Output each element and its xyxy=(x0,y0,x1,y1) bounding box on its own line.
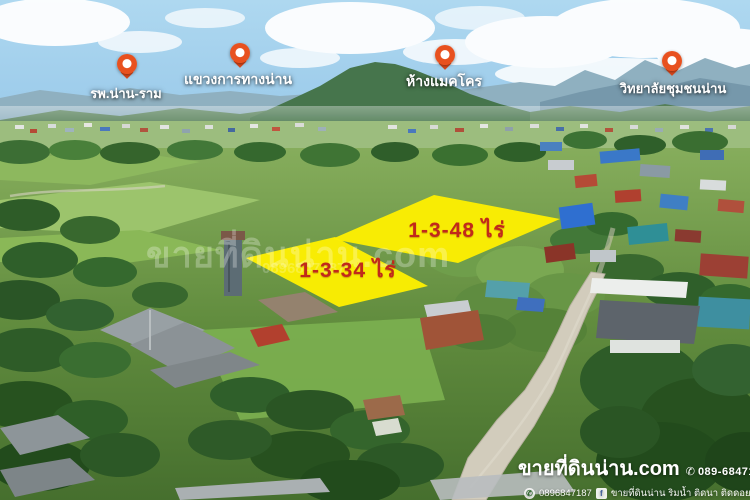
aerial-listing-photo: ขายที่ดินน่าน.com 0896847187 1-3-48 ไร่ … xyxy=(0,0,750,500)
facebook-page-name: ขายที่ดินน่าน ริมน้ำ ติดนา ติดดอย xyxy=(611,486,750,500)
pin-head xyxy=(435,45,455,65)
pin-label-makro: ห้างแมคโคร xyxy=(354,71,534,93)
website-title: ขายที่ดินน่าน.com xyxy=(518,452,680,484)
line-id: 0896847187 xyxy=(539,488,592,499)
pin-label-highway-district: แขวงการทางน่าน xyxy=(148,69,328,91)
plot-48-area-label: 1-3-48 ไร่ xyxy=(367,214,547,247)
pin-head xyxy=(662,51,682,71)
facebook-icon: f xyxy=(596,488,607,499)
map-pin-icon xyxy=(661,51,683,81)
map-pin-icon xyxy=(116,54,138,84)
phone-number: 089-6847187 xyxy=(698,466,750,478)
pin-head xyxy=(230,43,250,63)
plot-34-area-label: 1-3-34 ไร่ xyxy=(258,254,438,287)
line-icon: ✆ xyxy=(524,488,535,499)
pin-label-community-college: วิทยาลัยชุมชนน่าน xyxy=(583,78,750,99)
contact-block: ขายที่ดินน่าน.com ✆ 089-6847187 ✆ 089684… xyxy=(518,452,748,500)
pin-head xyxy=(117,54,137,74)
phone-icon: ✆ xyxy=(686,465,695,478)
